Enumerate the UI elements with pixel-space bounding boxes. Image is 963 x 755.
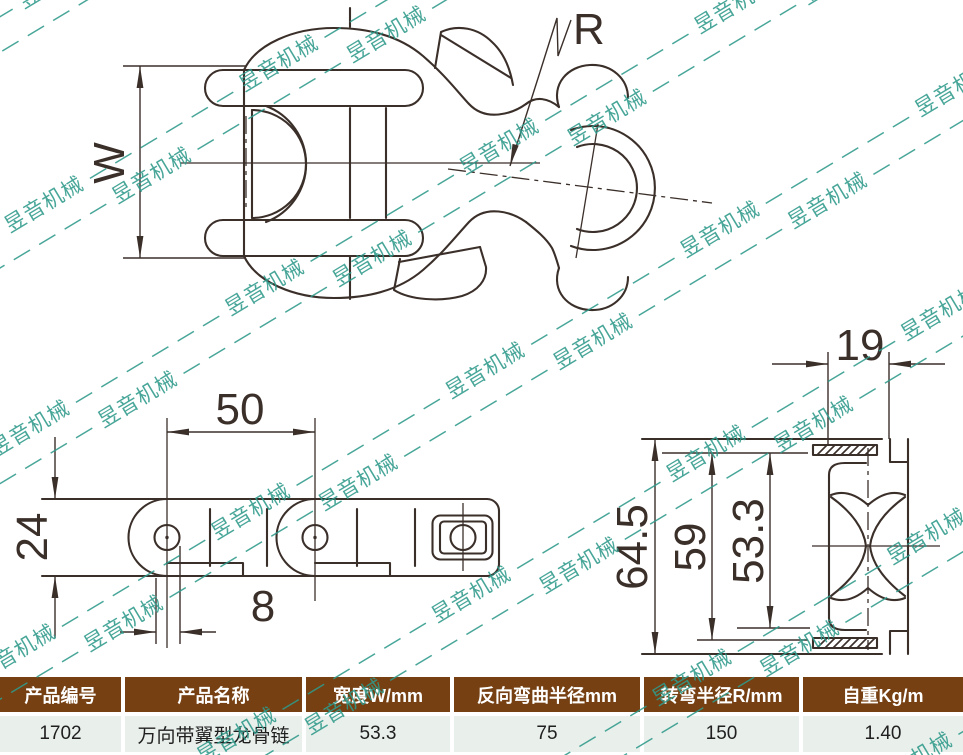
dim-label-19: 19 xyxy=(836,321,885,370)
cell-weight: 1.40 xyxy=(803,716,963,752)
table-data-row: 1702 万向带翼型龙骨链 53.3 75 150 1.40 xyxy=(0,716,963,752)
header-cell-reverse-radius: 反向弯曲半径mm xyxy=(454,677,644,712)
header-cell-weight: 自重Kg/m xyxy=(803,677,963,712)
page: W xyxy=(0,0,963,755)
cell-product-name: 万向带翼型龙骨链 xyxy=(125,716,306,752)
dim-label-w: W xyxy=(85,142,134,184)
header-cell-product-name: 产品名称 xyxy=(125,677,306,712)
dim-label-r: R xyxy=(573,5,605,54)
dimension-r: R xyxy=(510,5,605,166)
dimension-50: 50 xyxy=(167,385,315,435)
cell-width: 53.3 xyxy=(306,716,454,752)
dim-label-64-5: 64.5 xyxy=(608,504,657,590)
dim-label-53-3: 53.3 xyxy=(724,498,773,584)
dim-label-50: 50 xyxy=(216,385,265,434)
right-link xyxy=(448,65,712,310)
cell-product-code: 1702 xyxy=(0,716,125,752)
dimension-59: 59 xyxy=(666,453,715,640)
dim-label-24: 24 xyxy=(8,513,57,562)
cell-reverse-radius: 75 xyxy=(454,716,644,752)
dimension-64-5: 64.5 xyxy=(608,439,658,654)
dimension-8: 8 xyxy=(120,546,275,644)
top-view: 50 24 8 xyxy=(8,385,499,648)
header-cell-turn-radius: 转弯半径R/mm xyxy=(644,677,803,712)
header-cell-product-code: 产品编号 xyxy=(0,677,125,712)
dimension-24: 24 xyxy=(8,437,58,638)
dimension-19: 19 xyxy=(772,321,945,445)
left-link xyxy=(180,8,540,299)
dimension-w: W xyxy=(85,66,246,258)
dim-label-59: 59 xyxy=(666,523,715,572)
technical-drawing: W xyxy=(0,0,963,677)
dimension-53-3: 53.3 xyxy=(724,453,773,628)
side-view: 19 64.5 59 53.3 xyxy=(608,321,945,654)
table-header-row: 产品编号 产品名称 宽度W/mm 反向弯曲半径mm 转弯半径R/mm 自重Kg/… xyxy=(0,677,963,716)
cell-turn-radius: 150 xyxy=(644,716,803,752)
spec-table: 产品编号 产品名称 宽度W/mm 反向弯曲半径mm 转弯半径R/mm 自重Kg/… xyxy=(0,677,963,752)
front-view: W xyxy=(85,5,712,310)
dim-label-8: 8 xyxy=(251,582,275,631)
header-cell-width: 宽度W/mm xyxy=(306,677,454,712)
